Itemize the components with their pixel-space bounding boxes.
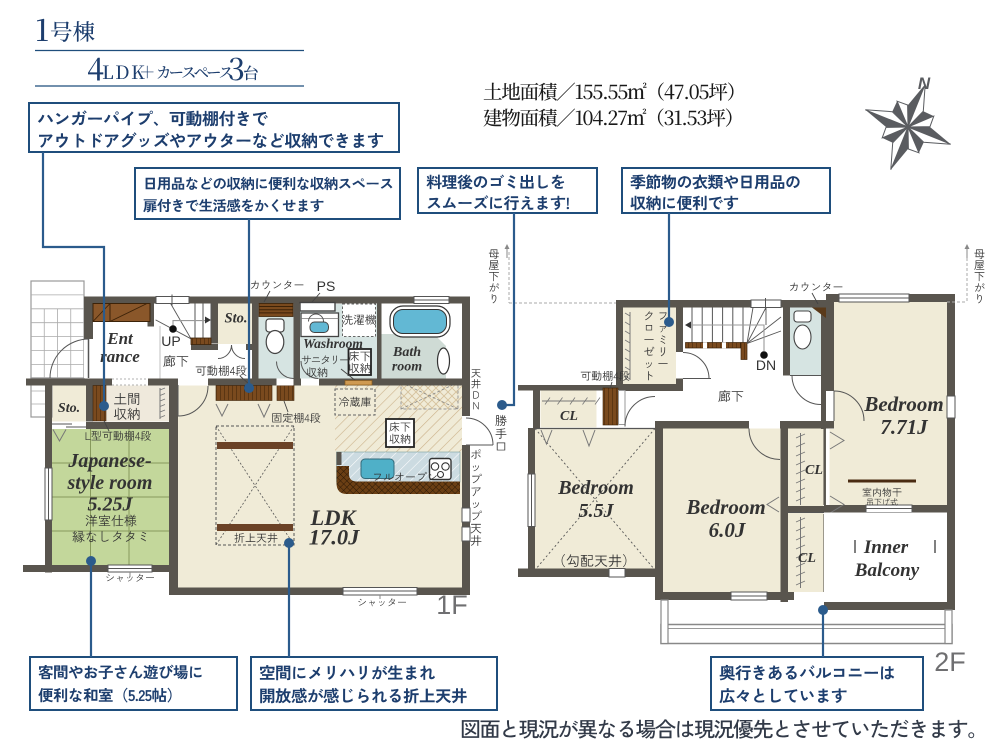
svg-text:5.25J: 5.25J bbox=[88, 494, 134, 516]
svg-text:N: N bbox=[918, 74, 931, 93]
svg-text:Bedroom: Bedroom bbox=[557, 477, 634, 499]
svg-text:Bedroom: Bedroom bbox=[863, 392, 943, 416]
svg-text:2F: 2F bbox=[934, 647, 966, 677]
svg-text:Bath: Bath bbox=[392, 345, 421, 360]
svg-text:PS: PS bbox=[317, 278, 336, 294]
svg-text:17.0J: 17.0J bbox=[309, 525, 360, 550]
svg-text:Bedroom: Bedroom bbox=[685, 495, 765, 519]
svg-text:1F: 1F bbox=[436, 590, 468, 620]
svg-text:CL: CL bbox=[805, 463, 823, 478]
svg-text:Inner: Inner bbox=[863, 537, 909, 558]
svg-text:UP: UP bbox=[161, 333, 180, 349]
svg-text:DN: DN bbox=[756, 357, 776, 373]
svg-text:rance: rance bbox=[100, 347, 140, 366]
svg-text:7.71J: 7.71J bbox=[880, 415, 929, 439]
svg-text:Sto.: Sto. bbox=[225, 311, 248, 327]
svg-text:Sto.: Sto. bbox=[58, 401, 80, 416]
svg-text:CL: CL bbox=[560, 409, 578, 424]
svg-text:style room: style room bbox=[67, 472, 153, 494]
svg-text:room: room bbox=[392, 360, 422, 375]
svg-text:6.0J: 6.0J bbox=[709, 518, 747, 542]
svg-text:Ent: Ent bbox=[106, 329, 134, 348]
svg-text:5.5J: 5.5J bbox=[579, 500, 615, 522]
svg-text:Balcony: Balcony bbox=[854, 560, 920, 581]
svg-text:Japanese-: Japanese- bbox=[67, 450, 151, 472]
svg-text:CL: CL bbox=[798, 551, 816, 566]
